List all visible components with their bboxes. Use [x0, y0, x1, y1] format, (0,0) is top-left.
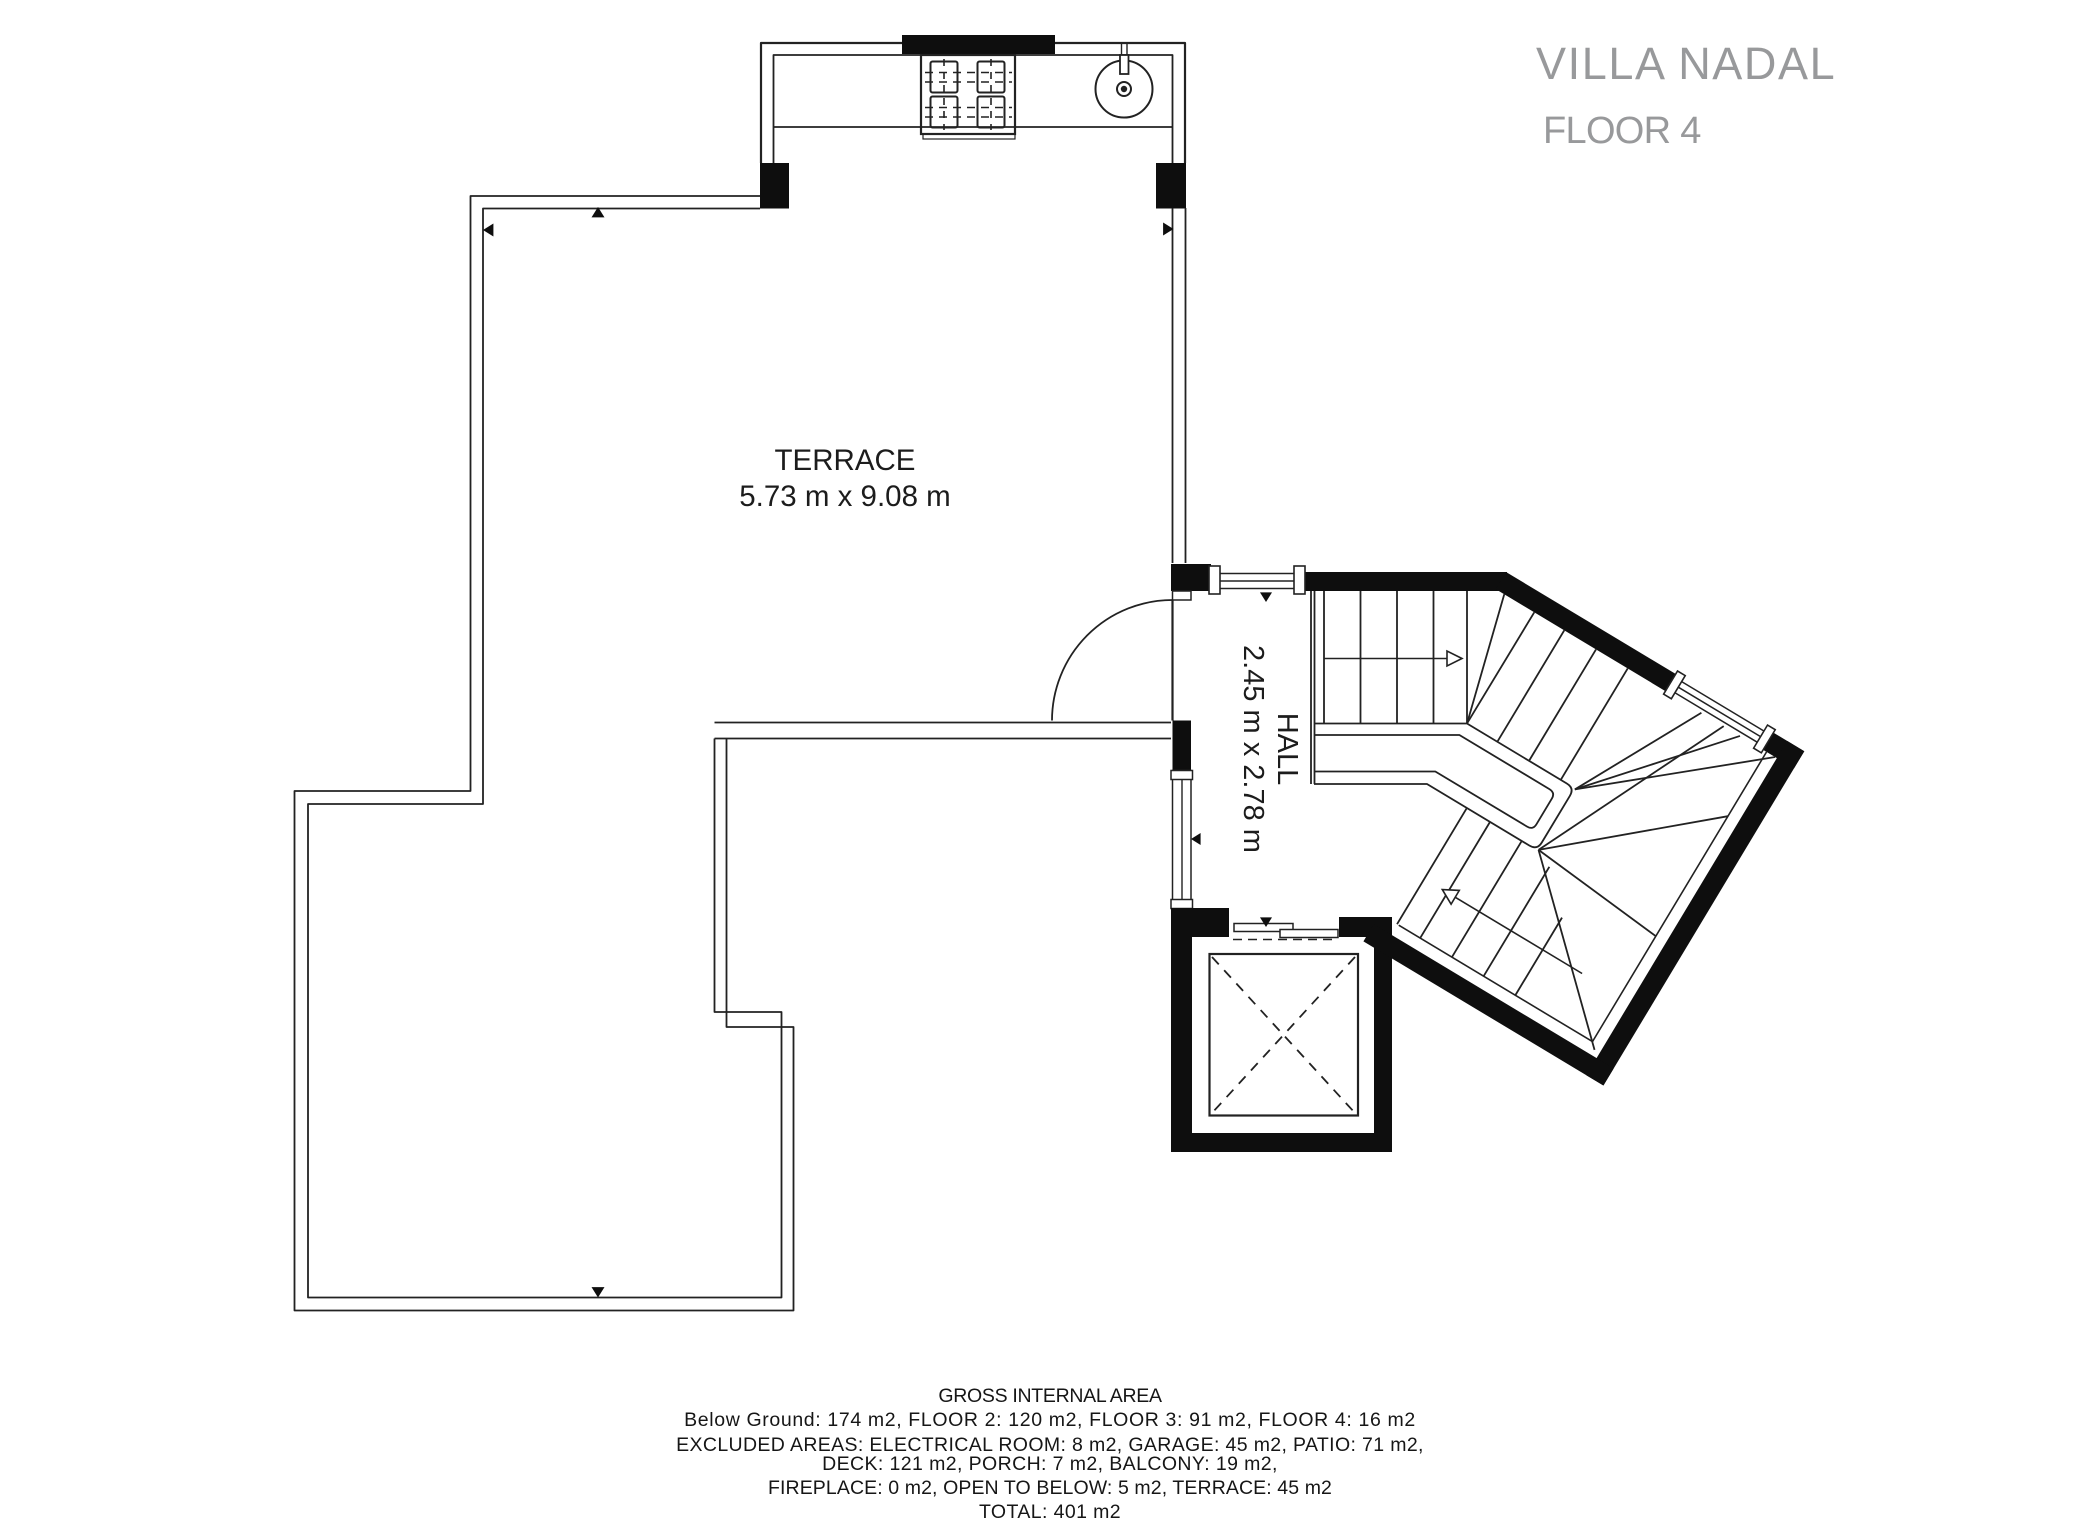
svg-text:TERRACE: TERRACE: [775, 444, 916, 477]
svg-text:5.73 m x 9.08 m: 5.73 m x 9.08 m: [739, 480, 951, 513]
svg-text:HALL: HALL: [1271, 713, 1303, 786]
svg-text:2.45 m x 2.78 m: 2.45 m x 2.78 m: [1237, 645, 1269, 853]
